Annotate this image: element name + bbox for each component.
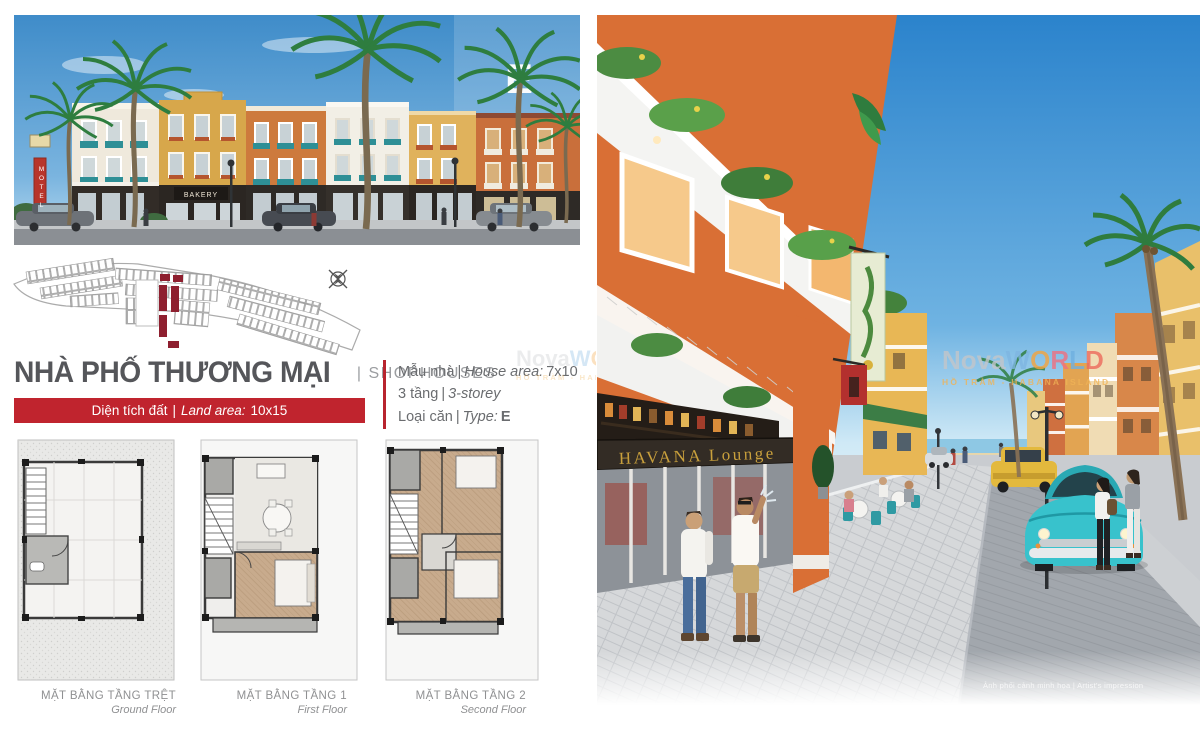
land-area-banner: Diện tích đất | Land area: 10x15: [14, 398, 365, 423]
spec-storeys: 3 tầng|3-storey: [398, 383, 598, 405]
unit-specs: Mẫu nhà|House area:7x10 3 tầng|3-storey …: [383, 360, 598, 429]
land-area-label-en: Land area:: [181, 403, 246, 418]
bottom-fade: [597, 651, 1200, 705]
plan-label-second: MẶT BẰNG TẦNG 2 Second Floor: [384, 690, 556, 716]
spec-house-area: Mẫu nhà|House area:7x10: [398, 361, 598, 383]
spec-label-vi: 3 tầng: [398, 386, 438, 402]
bakery-sign-text: BAKERY: [184, 192, 218, 199]
street-scene-rendering: HAVANA Lounge: [597, 15, 1200, 705]
separator: |: [441, 386, 445, 402]
road: [14, 229, 580, 245]
spec-label-en: Type:: [463, 409, 498, 425]
title-vietnamese: NHÀ PHỐ THƯƠNG MẠI: [14, 356, 330, 390]
spec-type: Loại căn|Type:E: [398, 406, 598, 428]
plan-label-ground: MẶT BẰNG TẦNG TRỆT Ground Floor: [14, 690, 186, 716]
spec-label-en: 3-storey: [448, 386, 500, 402]
plan-label-vi: MẶT BẰNG TẦNG 1: [199, 690, 347, 702]
chrome-bumper: [1029, 548, 1141, 558]
photo-caption: Ảnh phối cảnh minh họa | Artist's impres…: [983, 681, 1143, 690]
spec-label-vi: Loại căn: [398, 409, 453, 425]
plan-label-en: Ground Floor: [14, 704, 176, 716]
handbag: [1107, 499, 1117, 515]
building-yellow: BAKERY: [159, 92, 246, 227]
plan-label-en: Second Floor: [384, 704, 526, 716]
compass-rose-icon: [329, 270, 347, 288]
bathroom: [26, 536, 68, 584]
bathroom: [205, 458, 233, 494]
shophouse-elevation-rendering: BAKERY: [14, 15, 580, 245]
headlight: [1039, 529, 1050, 540]
floor-plan-second: [384, 430, 556, 688]
window: [727, 197, 782, 287]
spec-value: 7x10: [546, 364, 577, 380]
planter-tree: [812, 445, 834, 489]
balcony: [213, 618, 317, 632]
building-cream: [72, 103, 159, 227]
balcony: [398, 622, 498, 634]
spec-label-vi: Mẫu nhà: [398, 364, 454, 380]
street-scene-svg: HAVANA Lounge: [597, 15, 1200, 705]
floor-plan-first: [199, 430, 371, 688]
plan-label-vi: MẶT BẰNG TẦNG TRỆT: [14, 690, 176, 702]
motel-sign-text: MOTEL: [35, 160, 47, 216]
floor-plan-ground: [14, 430, 186, 688]
separator: |: [172, 403, 176, 418]
lot-rows: [26, 258, 339, 355]
bathroom: [390, 558, 418, 598]
spec-value: E: [501, 409, 511, 425]
plaza-block: [136, 280, 158, 326]
land-area-value: 10x15: [251, 403, 288, 418]
land-area-label-vi: Diện tích đất: [92, 403, 168, 418]
bathroom: [390, 450, 420, 490]
plan-label-first: MẶT BẰNG TẦNG 1 First Floor: [199, 690, 371, 716]
separator: |: [457, 364, 461, 380]
vertical-plant-banner: [849, 247, 889, 381]
bathroom: [205, 558, 231, 598]
separator: |: [456, 409, 460, 425]
motel-sign-top: [30, 135, 50, 147]
plan-label-en: First Floor: [199, 704, 347, 716]
plan-label-vi: MẶT BẰNG TẦNG 2: [384, 690, 526, 702]
spec-label-en: House area:: [464, 364, 543, 380]
master-site-plan: [8, 254, 370, 358]
